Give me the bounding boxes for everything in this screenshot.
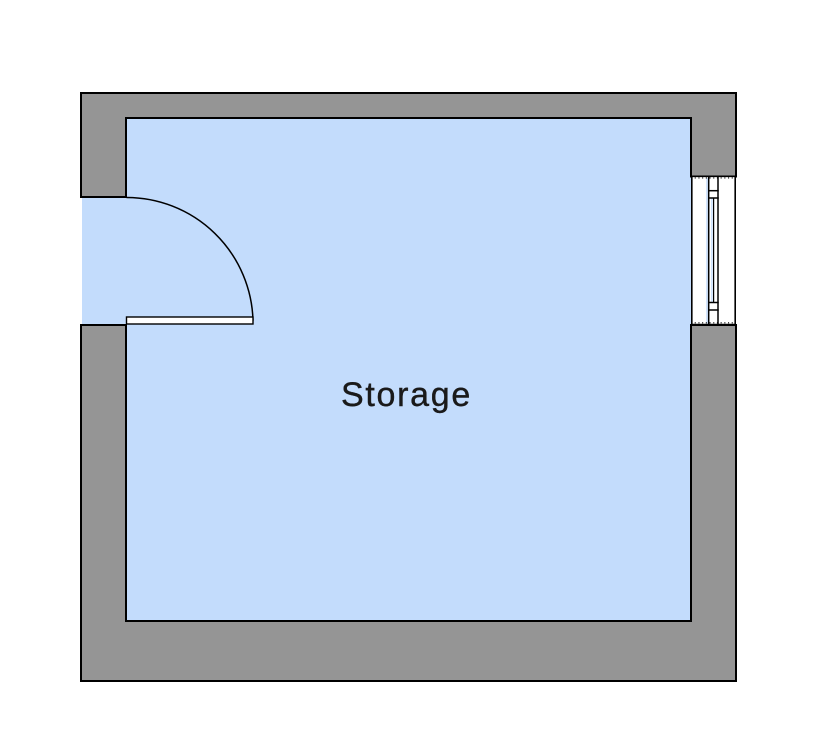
svg-text:Storage: Storage [341,376,472,414]
